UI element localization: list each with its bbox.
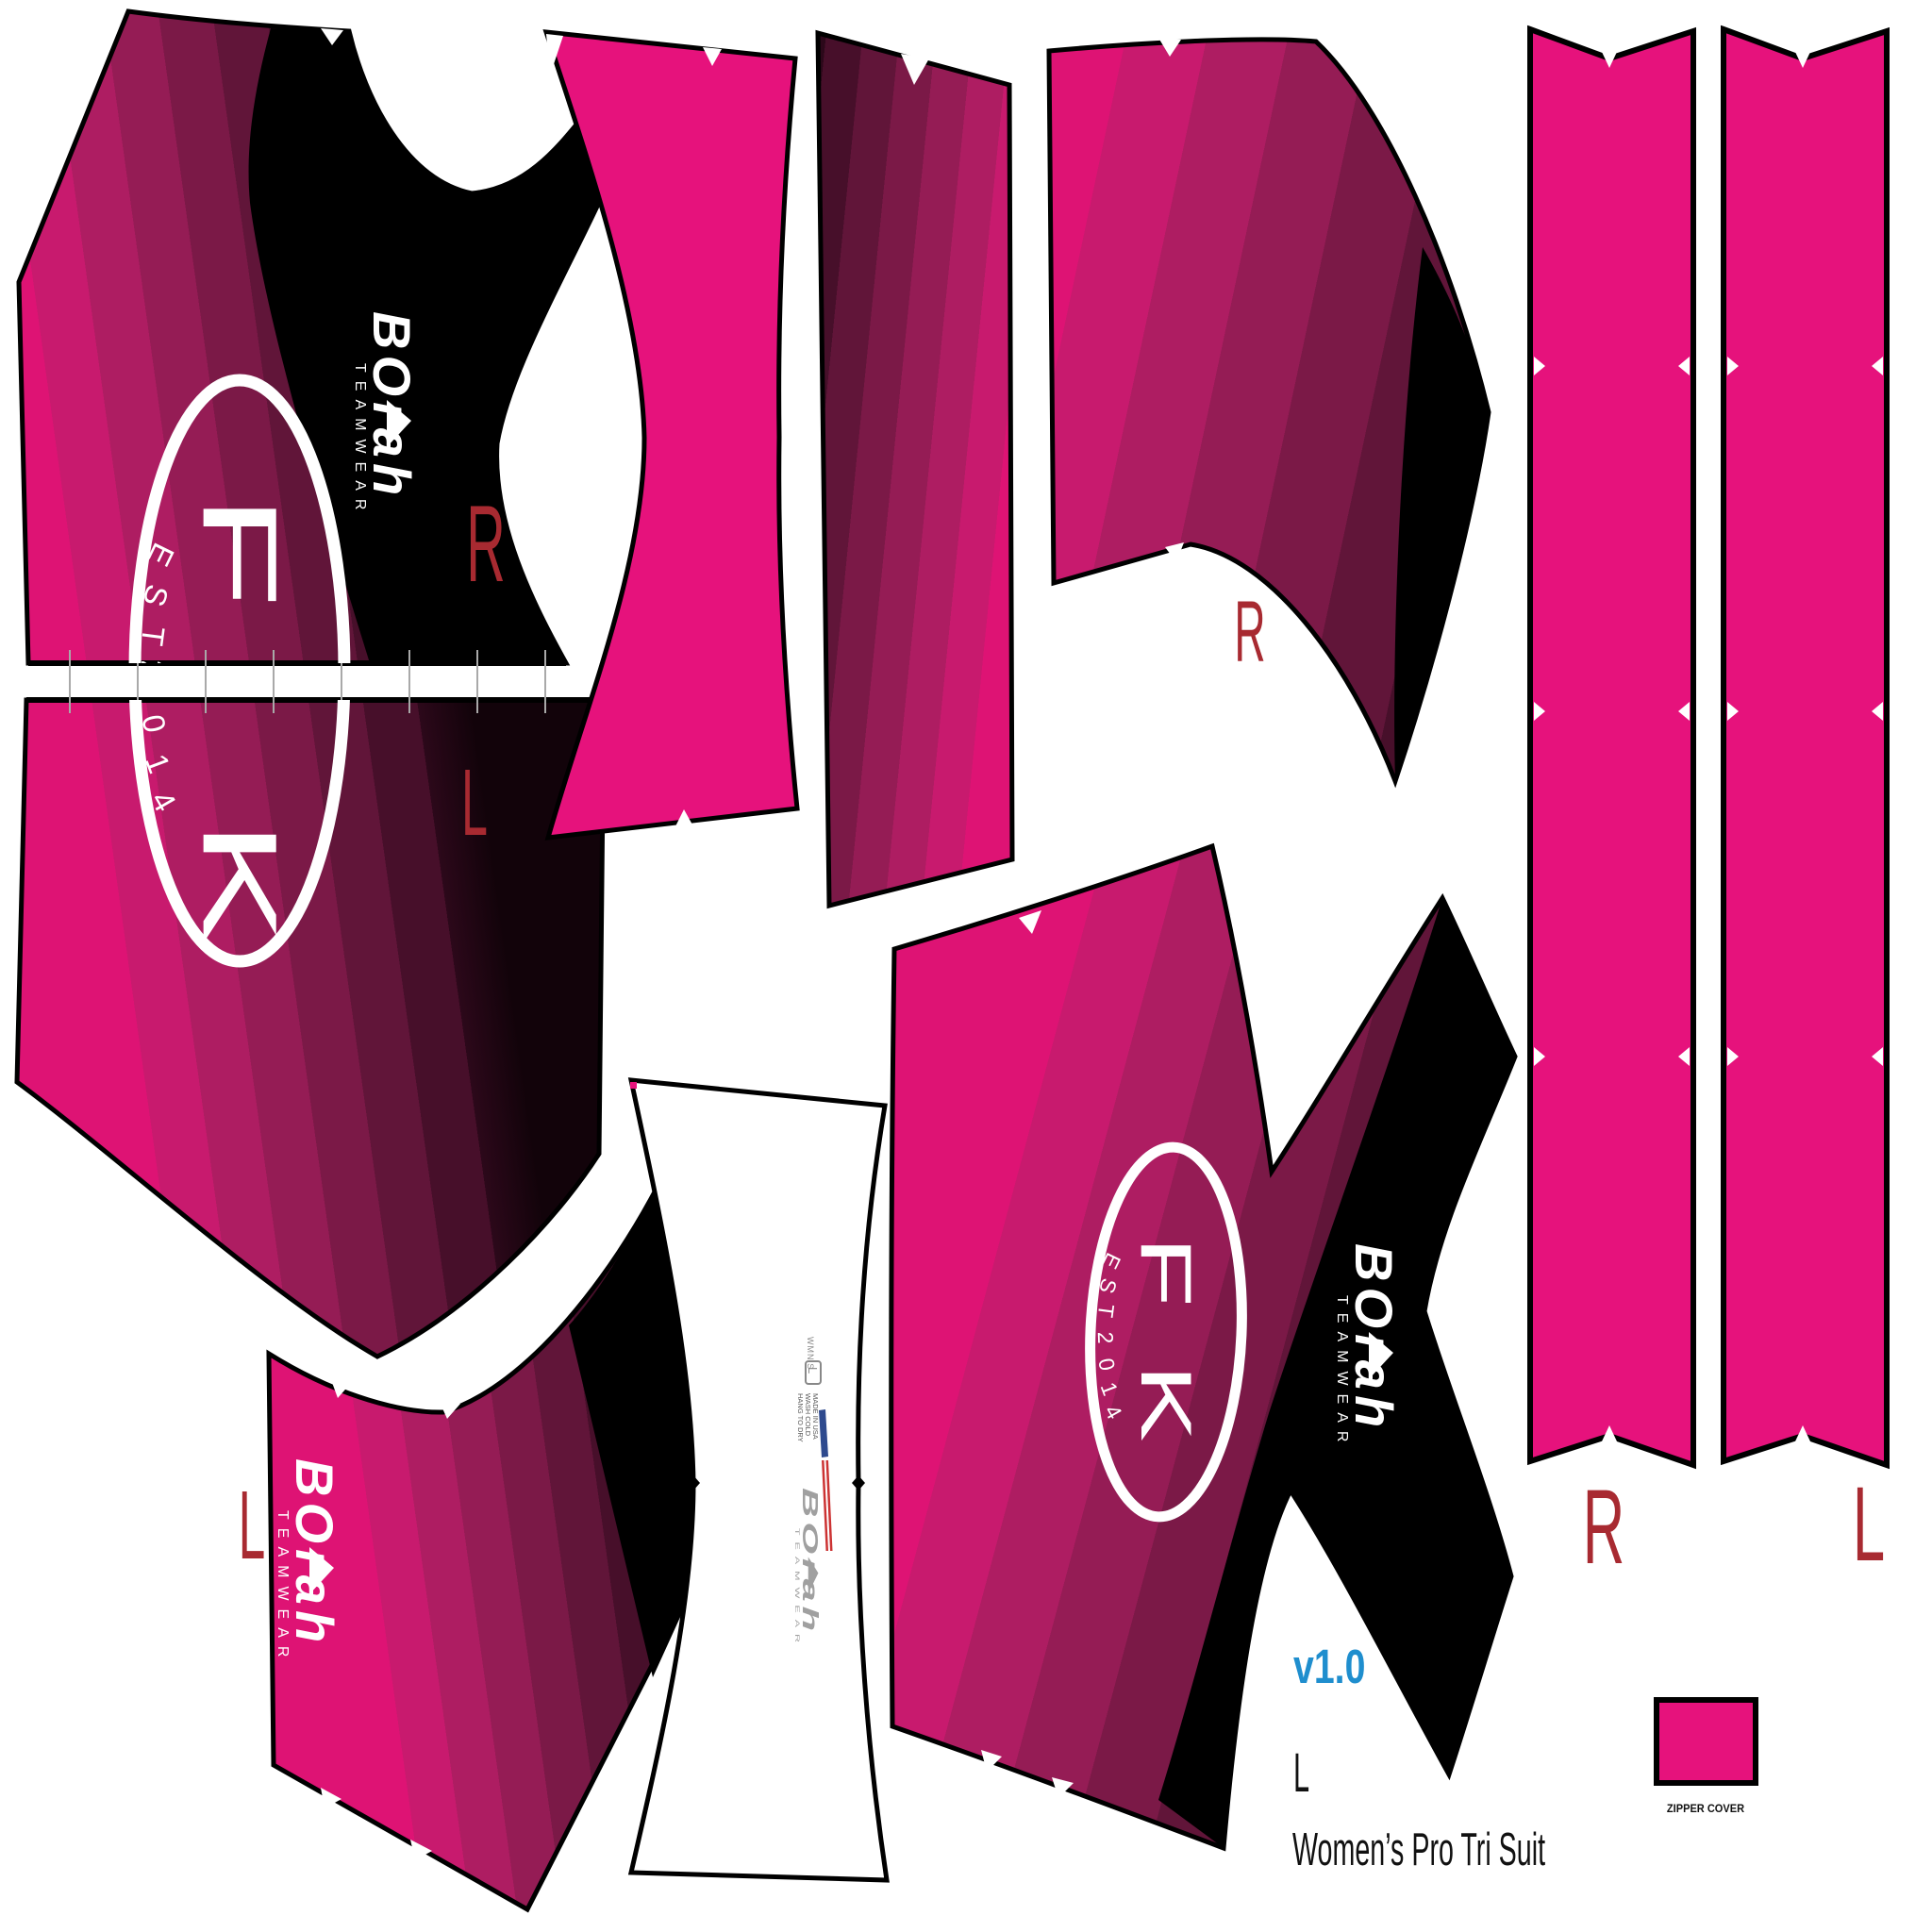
svg-text:L: L (461, 749, 488, 856)
svg-text:Women’s Pro Tri Suit: Women’s Pro Tri Suit (1292, 1824, 1545, 1875)
svg-text:v1.0: v1.0 (1293, 1640, 1365, 1693)
svg-text:F: F (180, 493, 298, 608)
svg-text:L: L (1293, 1742, 1309, 1804)
svg-text:L: L (806, 1367, 820, 1374)
svg-text:ZIPPER COVER: ZIPPER COVER (1667, 1804, 1745, 1815)
svg-text:R: R (1234, 584, 1265, 680)
svg-text:F: F (1125, 1236, 1206, 1307)
svg-text:L: L (1853, 1466, 1885, 1584)
svg-text:R: R (1583, 1469, 1624, 1587)
svg-text:K: K (180, 819, 298, 944)
svg-text:R: R (466, 485, 506, 606)
svg-text:HANG TO DRY: HANG TO DRY (796, 1393, 805, 1442)
svg-text:K: K (1125, 1363, 1206, 1441)
svg-text:2: 2 (1093, 1331, 1118, 1344)
svg-text:WMN'S: WMN'S (806, 1337, 815, 1370)
svg-text:L: L (239, 1472, 266, 1580)
